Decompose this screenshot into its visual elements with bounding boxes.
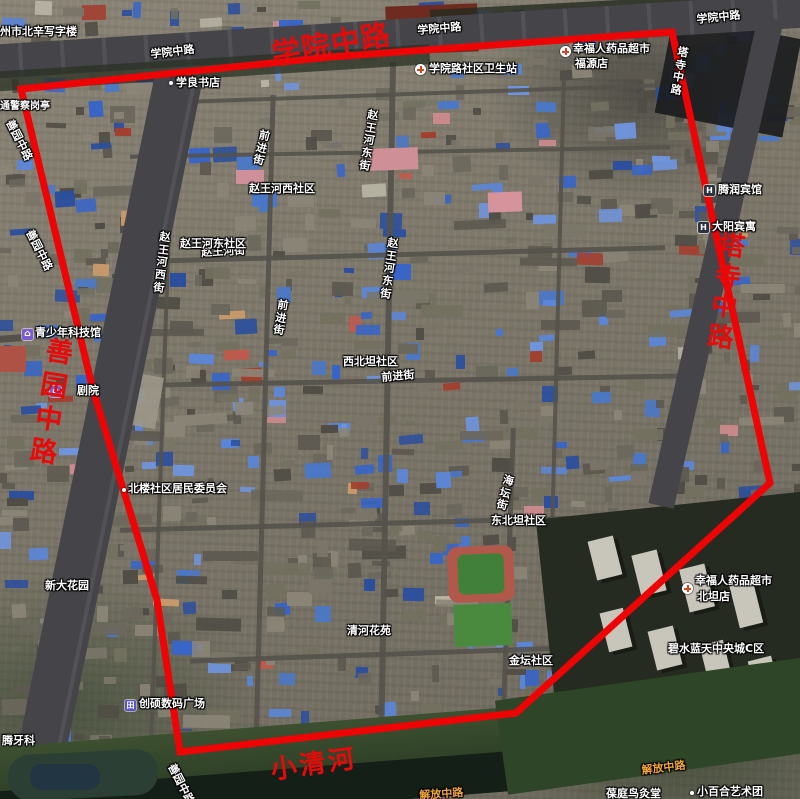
big-label-xiaoqing-river: 小清河 [268,738,359,787]
highlight-road-names: 学院中路 善园中路 塔寺中路 小清河 [0,0,800,799]
big-label-shanyuan-road: 善园中路 [27,334,76,472]
big-label-xueyuan-road: 学院中路 [268,11,393,73]
big-label-tasi-road: 塔寺中路 [705,230,747,355]
satellite-map-canvas[interactable]: 学院中路 学院中路 学院中路 塔寺中路 善园中路 善园中路 善园中路 解放中路 … [0,0,800,799]
